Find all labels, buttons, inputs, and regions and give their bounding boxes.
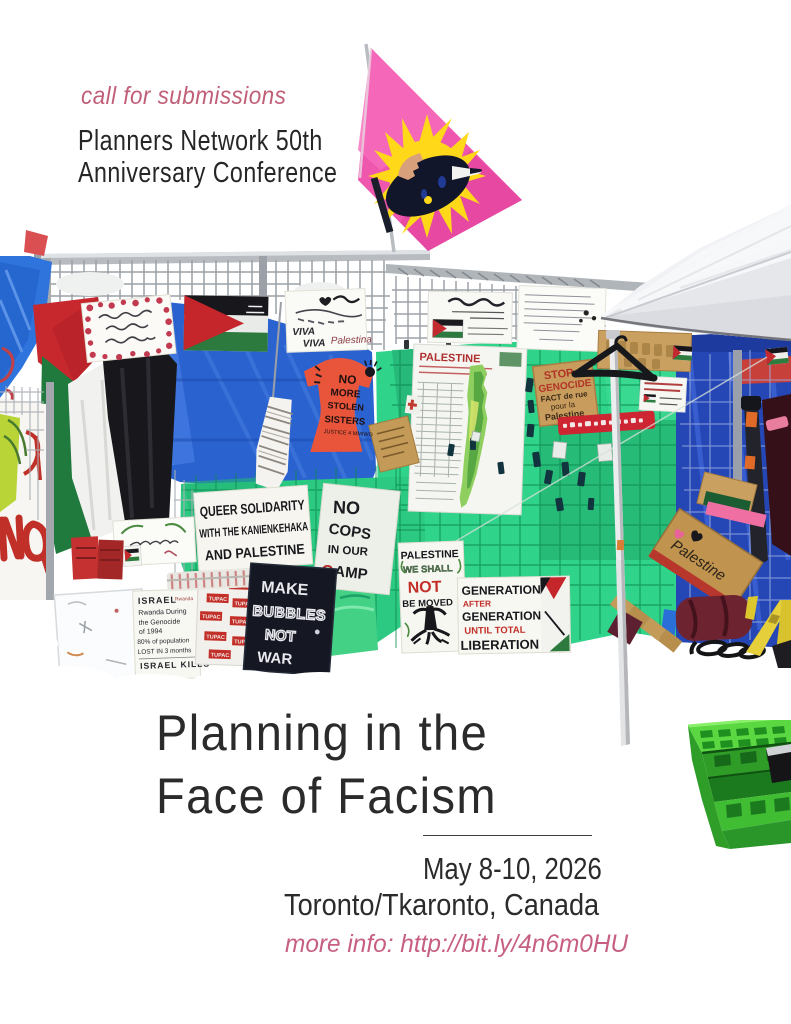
svg-text:ISRAEL: ISRAEL — [138, 595, 177, 606]
svg-text:of 1994: of 1994 — [139, 628, 163, 636]
svg-text:VIVA: VIVA — [292, 326, 315, 338]
svg-text:TUPAC: TUPAC — [209, 596, 228, 603]
svg-text:NOT: NOT — [407, 579, 442, 597]
svg-text:MAKE: MAKE — [261, 579, 310, 599]
svg-text:LIBERATION: LIBERATION — [460, 637, 539, 653]
svg-text:PALESTINE: PALESTINE — [400, 548, 459, 562]
svg-text:Rwanda: Rwanda — [175, 596, 194, 603]
svg-text:PALESTINE: PALESTINE — [419, 351, 480, 365]
svg-text:GENERATION: GENERATION — [461, 583, 540, 598]
svg-text:AFTER: AFTER — [463, 598, 492, 608]
svg-text:NO: NO — [338, 372, 357, 387]
svg-text:GENERATION: GENERATION — [462, 609, 541, 624]
svg-text:AMP: AMP — [333, 563, 368, 583]
svg-text:TUPAC: TUPAC — [211, 652, 230, 659]
svg-text:TUPAC: TUPAC — [206, 634, 225, 641]
svg-text:NO: NO — [333, 497, 361, 518]
svg-text:WAR: WAR — [257, 649, 293, 668]
svg-text:the Genocide: the Genocide — [139, 618, 181, 626]
svg-text:UNTIL TOTAL: UNTIL TOTAL — [464, 625, 526, 637]
svg-text:WE SHALL: WE SHALL — [403, 563, 453, 576]
svg-text:VIVA: VIVA — [303, 338, 326, 350]
svg-text:MORE: MORE — [330, 387, 361, 400]
svg-text:NOT: NOT — [264, 627, 296, 645]
svg-text:TUPAC: TUPAC — [202, 614, 221, 621]
svg-text:Palestina: Palestina — [331, 334, 373, 346]
